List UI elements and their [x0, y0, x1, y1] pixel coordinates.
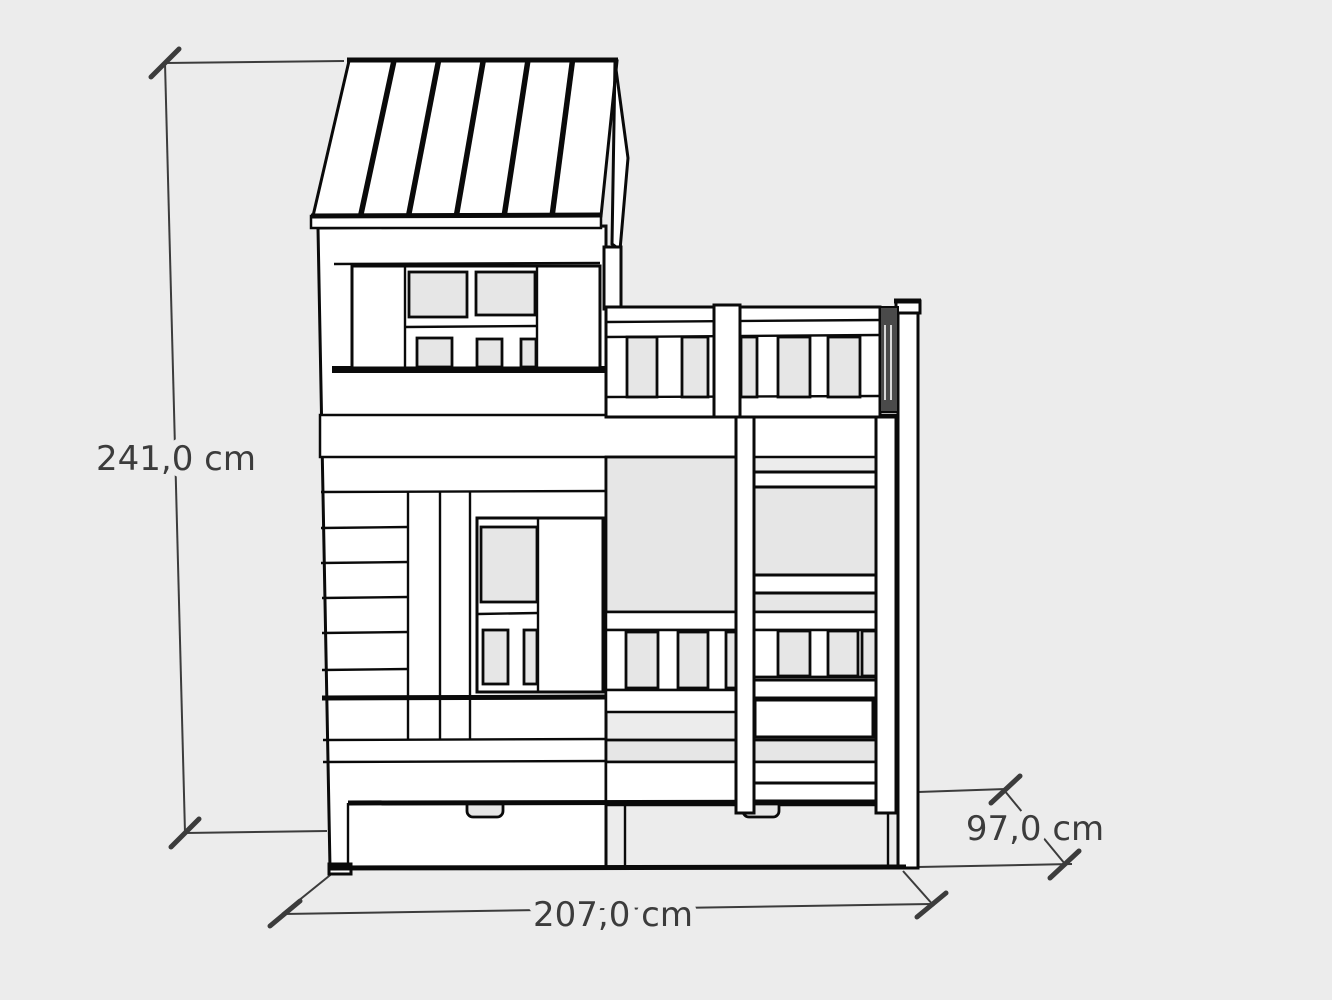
baluster-opening	[682, 337, 708, 397]
ladder-rung[interactable]	[754, 575, 876, 593]
ladder-rail	[876, 417, 896, 813]
gable-post	[604, 247, 621, 309]
baluster-opening	[828, 631, 858, 676]
window-pane	[476, 272, 535, 315]
window-pane	[521, 339, 536, 367]
window-pane	[483, 630, 508, 684]
bunk-opening	[606, 457, 736, 612]
baluster-opening	[678, 632, 708, 688]
baluster-opening	[828, 337, 860, 397]
upper-guardrail	[606, 305, 898, 417]
drawer-handle[interactable]	[467, 804, 503, 817]
bunk-opening	[754, 487, 876, 575]
window-pane	[417, 338, 452, 367]
bunk-bed-technical-drawing: 241,0 cm 207,0 cm 97,0 cm	[0, 0, 1332, 1000]
window-pane	[409, 272, 467, 317]
guardrail-post	[714, 305, 740, 417]
dimension-height-label: 241,0 cm	[96, 439, 256, 479]
bunk-side-board	[755, 700, 873, 737]
upper-window	[352, 266, 600, 368]
window-pane	[477, 339, 502, 367]
upper-bunk-frame	[320, 415, 898, 457]
dimension-depth-label: 97,0 cm	[966, 809, 1104, 849]
ladder-rail	[736, 417, 754, 813]
roof-gable-edge	[612, 62, 628, 250]
ladder-rung[interactable]	[754, 783, 876, 801]
baluster-opening	[626, 632, 658, 688]
ladder-rung[interactable]	[754, 680, 876, 698]
dimension-width-label: 207,0 cm	[533, 895, 693, 935]
window-pane	[524, 630, 537, 684]
baluster-opening	[862, 631, 876, 676]
baluster-opening	[627, 337, 657, 397]
baluster-opening	[778, 631, 810, 676]
lower-window	[477, 518, 603, 692]
window-pane	[481, 527, 537, 602]
baluster-opening	[778, 337, 810, 397]
baluster-opening	[741, 337, 757, 397]
ladder-rung[interactable]	[754, 472, 876, 487]
guardrail-side-panel	[880, 307, 898, 412]
bunk-opening	[754, 593, 876, 612]
